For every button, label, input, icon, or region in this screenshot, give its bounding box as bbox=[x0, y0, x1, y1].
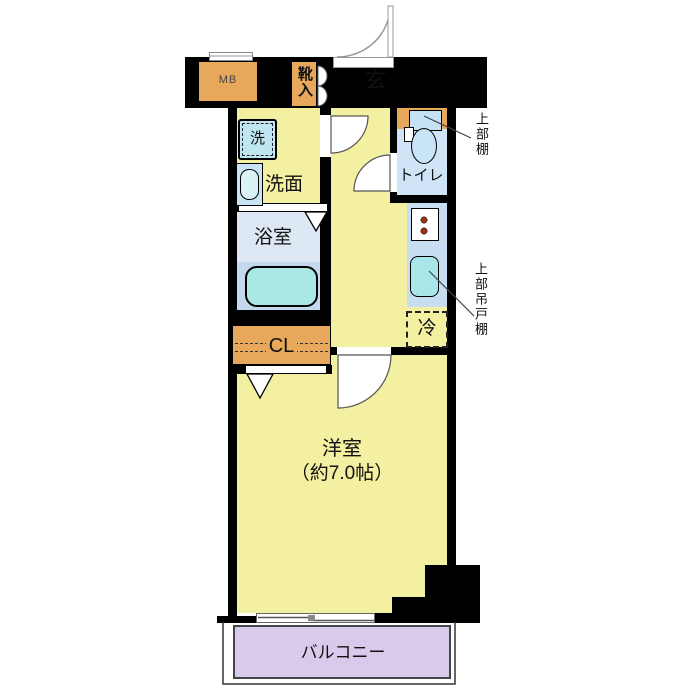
western-room-size-label: （約7.0帖） bbox=[262, 464, 422, 485]
bathtub bbox=[245, 266, 318, 307]
stove bbox=[411, 208, 439, 241]
washroom-door-opening bbox=[320, 115, 331, 157]
balcony-label: バルコニー bbox=[253, 644, 433, 663]
bathroom-label: 浴室 bbox=[254, 228, 292, 249]
room-door-opening bbox=[337, 347, 391, 355]
meter-box-window bbox=[209, 52, 253, 61]
western-room-label: 洋室 bbox=[262, 438, 422, 460]
kitchen-sink bbox=[410, 256, 439, 297]
entrance-label: 玄 bbox=[333, 69, 418, 93]
pillar-step-upper bbox=[425, 565, 480, 598]
bathtub-bottom-wall bbox=[228, 310, 331, 325]
bottom-mid-wall bbox=[374, 613, 394, 623]
upper-hanging-cabinet-note: 上部吊戸棚 bbox=[471, 262, 490, 337]
closet-door-opening bbox=[246, 366, 326, 373]
refrigerator-label: 冷 bbox=[406, 319, 448, 340]
meter-box-label: MB bbox=[199, 74, 257, 86]
pillar-step-lower bbox=[392, 597, 480, 623]
washroom-label: 洗面 bbox=[265, 175, 303, 196]
toilet-label: トイレ bbox=[393, 168, 449, 185]
closet-label: CL bbox=[232, 335, 331, 357]
entrance-door-opening bbox=[333, 57, 394, 68]
upper-shelf-note: 上部棚 bbox=[472, 112, 491, 157]
entrance-door-arc bbox=[337, 6, 390, 57]
washer-label: 洗 bbox=[238, 131, 277, 148]
floor-plan: MB 靴入 玄 洗 洗面 浴室 トイレ CL 冷 洋室 （約7.0帖） バルコニ… bbox=[0, 0, 700, 700]
balcony-window bbox=[256, 613, 375, 623]
toilet-bottom-wall bbox=[396, 195, 456, 203]
vanity-basin bbox=[240, 169, 259, 200]
toilet-bowl bbox=[411, 128, 437, 164]
entrance-door-leaf bbox=[388, 6, 393, 57]
bottom-left-wall bbox=[217, 616, 256, 623]
shoe-cabinet-label: 靴入 bbox=[294, 66, 315, 98]
